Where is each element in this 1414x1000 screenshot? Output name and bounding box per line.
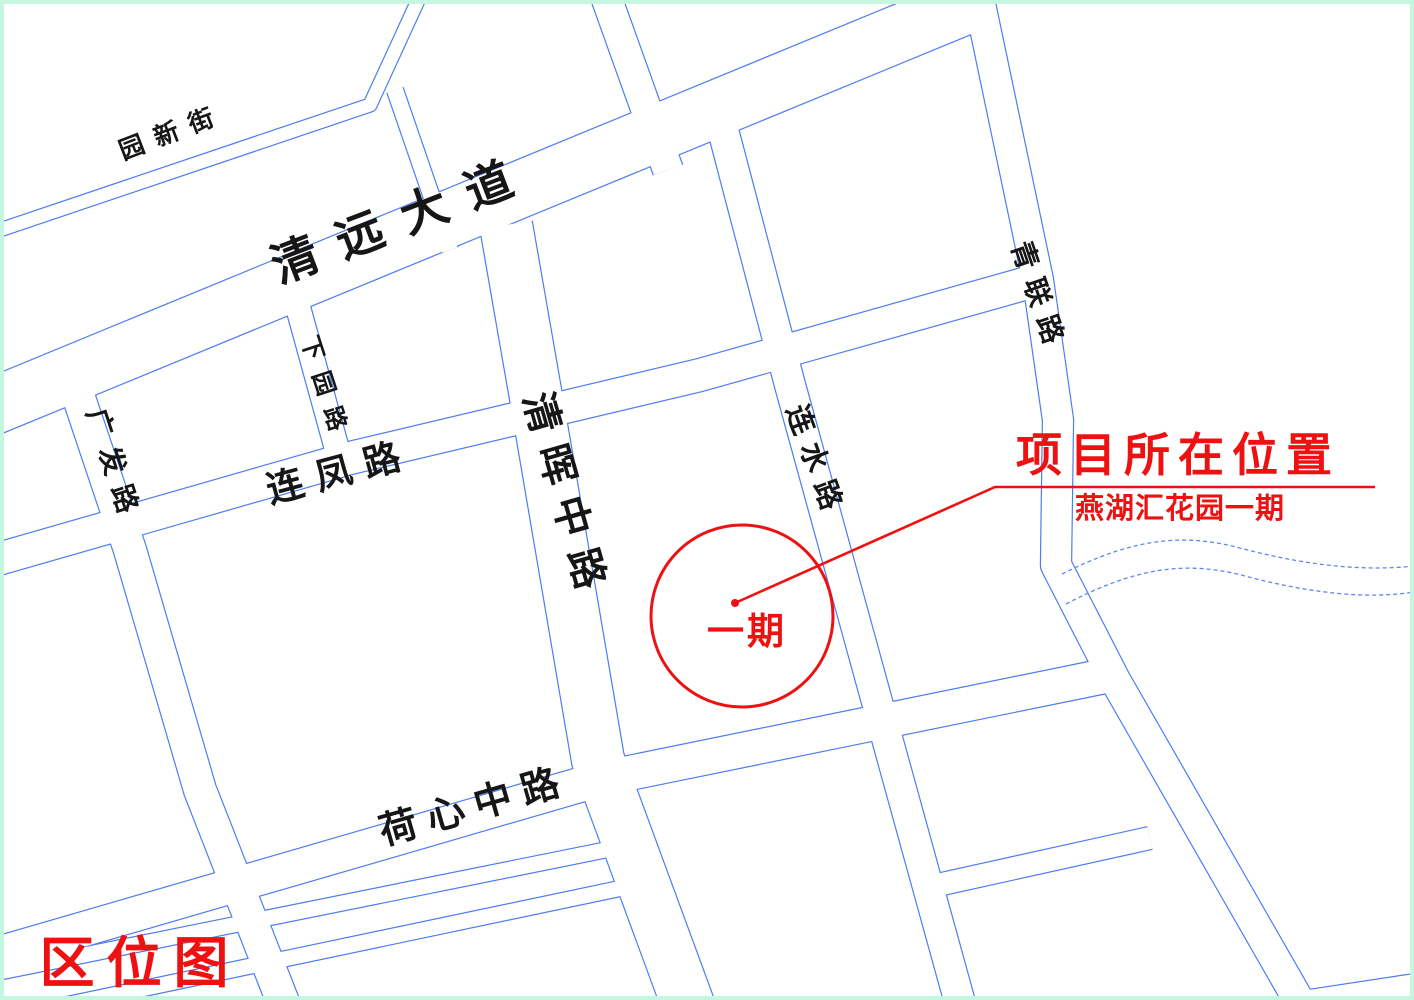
road-label-xiayuan-road: 下园路 <box>295 332 356 446</box>
annotation-title: 项目所在位置 <box>1016 429 1340 481</box>
phase-label: 一期 <box>707 611 787 652</box>
road-label-lianshui-road: 连水路 <box>780 400 852 524</box>
annotation-subtitle: 燕湖汇花园一期 <box>1075 492 1285 525</box>
river-lines <box>1062 540 1414 604</box>
map-title: 区位图 <box>39 932 240 994</box>
site-annotation: 一期 项目所在位置 燕湖汇花园一期 <box>651 429 1375 707</box>
location-map: 园新街 清远大道 下园路 连凤路 清晖中路 连水路 青联路 广发路 荷心中路 一… <box>0 0 1414 1000</box>
map-canvas: 园新街 清远大道 下园路 连凤路 清晖中路 连水路 青联路 广发路 荷心中路 一… <box>0 0 1414 1000</box>
road-label-hexin-middle-road: 荷心中路 <box>375 759 575 853</box>
